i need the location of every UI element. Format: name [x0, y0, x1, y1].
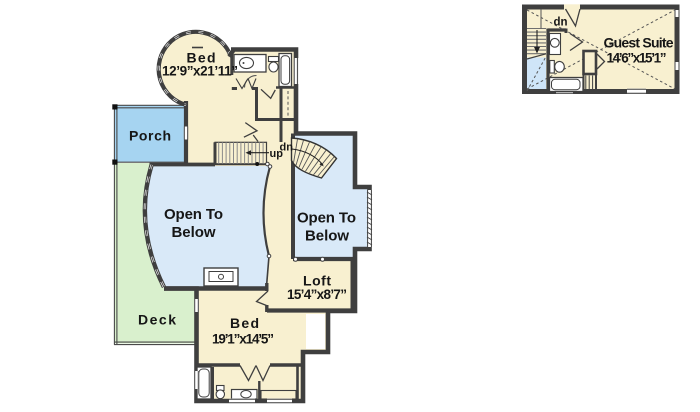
svg-text:dn: dn — [280, 142, 294, 154]
svg-text:dn: dn — [554, 17, 568, 29]
svg-text:Bed: Bed — [230, 315, 259, 331]
svg-text:Deck: Deck — [138, 312, 176, 328]
svg-text:14’6”x15’1”: 14’6”x15’1” — [607, 51, 667, 66]
svg-text:19’1”x14’5”: 19’1”x14’5” — [212, 332, 274, 347]
svg-text:Below: Below — [305, 228, 349, 245]
svg-text:Porch: Porch — [129, 128, 171, 144]
svg-text:Below: Below — [172, 224, 216, 241]
svg-text:12’9”x21’11”: 12’9”x21’11” — [162, 64, 238, 79]
svg-text:Guest Suite: Guest Suite — [604, 35, 674, 51]
svg-text:15’4”x8’7”: 15’4”x8’7” — [287, 287, 347, 302]
svg-text:Open To: Open To — [164, 206, 223, 223]
svg-text:Open To: Open To — [297, 210, 356, 227]
